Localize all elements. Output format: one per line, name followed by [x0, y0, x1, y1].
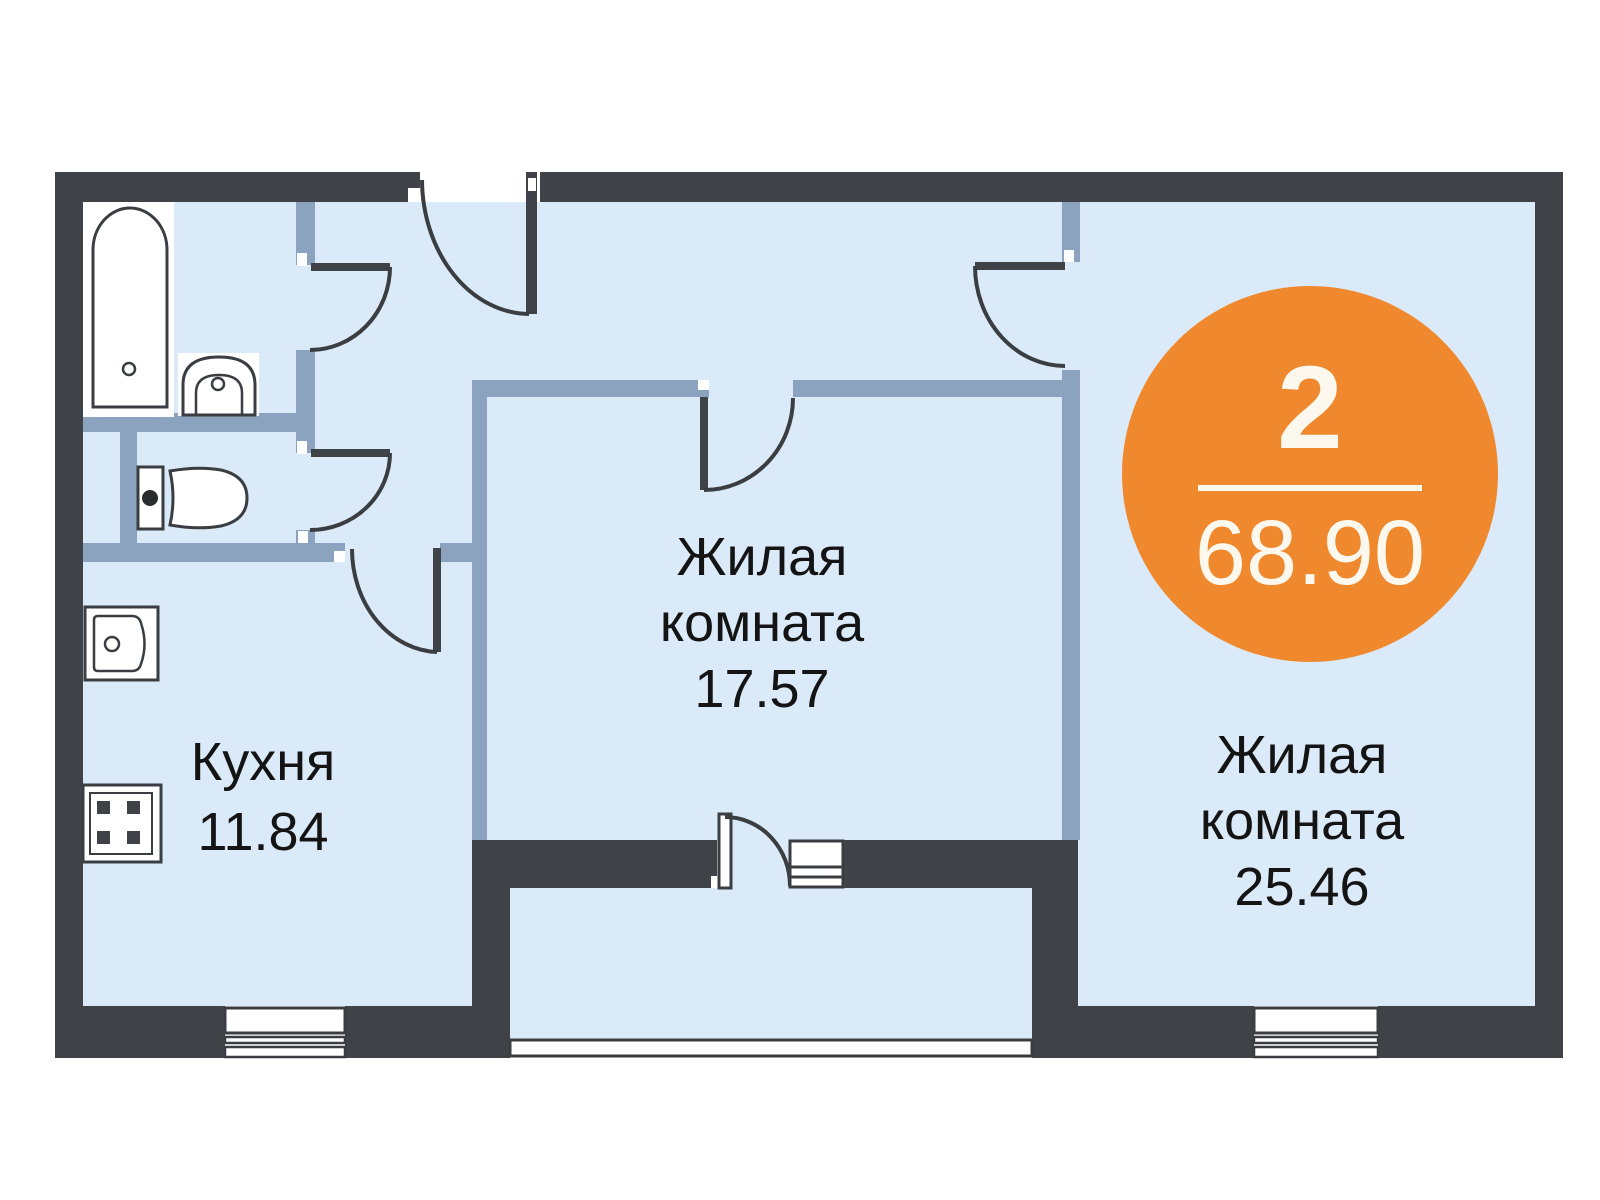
- badge-total-area: 68.90: [1195, 507, 1425, 599]
- bathroom-door: [297, 253, 390, 350]
- bathtub-icon: [83, 202, 174, 417]
- kitchen-label: Кухня 11.84: [118, 727, 408, 867]
- entrance-door: [408, 172, 537, 314]
- room-name-line: комната: [562, 590, 962, 656]
- kitchen-door: [334, 548, 441, 652]
- room-area: 25.46: [1102, 854, 1502, 920]
- living-room-2-door: [975, 250, 1074, 366]
- room-name-line: Жилая: [562, 524, 962, 590]
- apartment-badge: 2 68.90: [1122, 286, 1498, 662]
- living-room-2-label: Жилая комната 25.46: [1102, 722, 1502, 920]
- wc-door: [297, 441, 390, 543]
- balcony-glazing: [510, 1040, 1032, 1056]
- balcony-window: [790, 841, 843, 887]
- badge-divider: [1198, 485, 1422, 491]
- room-area: 11.84: [118, 797, 408, 867]
- floor-plan: Жилая комната 17.57 Жилая комната 25.46 …: [0, 0, 1600, 1200]
- living-room-1-door: [698, 380, 793, 490]
- toilet-icon: [138, 467, 247, 529]
- room-area: 17.57: [562, 656, 962, 722]
- living-room-1-label: Жилая комната 17.57: [562, 524, 962, 722]
- balcony-door: [711, 814, 790, 888]
- badge-room-count: 2: [1277, 349, 1343, 467]
- kitchen-sink-icon: [85, 607, 158, 680]
- living-room-2-window: [1254, 1008, 1378, 1057]
- kitchen-window: [225, 1008, 345, 1057]
- bathroom-sink-icon: [178, 353, 259, 416]
- room-name-line: Жилая: [1102, 722, 1502, 788]
- room-name-line: комната: [1102, 788, 1502, 854]
- room-name-line: Кухня: [118, 727, 408, 797]
